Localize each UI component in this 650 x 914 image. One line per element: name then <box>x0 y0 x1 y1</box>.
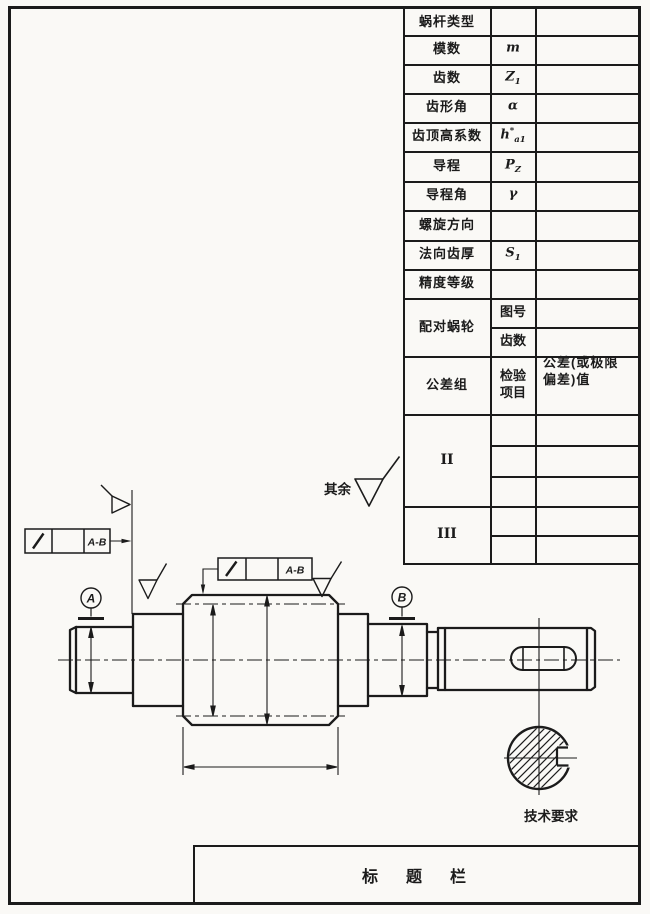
sheet-border <box>8 6 641 905</box>
drawing-sheet: A B A-B A-B <box>0 0 650 914</box>
